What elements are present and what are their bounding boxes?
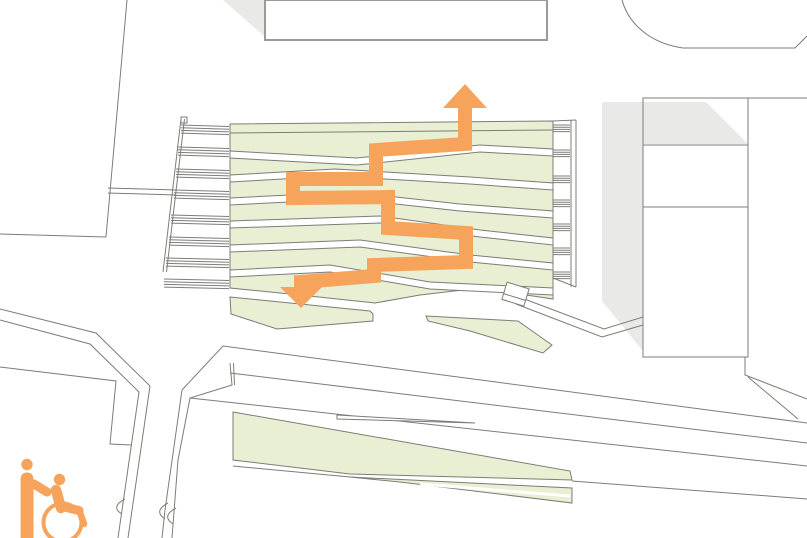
building-top-right-outline <box>622 0 807 48</box>
stairs-left-steps-1-line <box>181 133 229 135</box>
roadside-line <box>572 481 807 499</box>
plaza-boundary-bottom <box>0 234 106 237</box>
stairs-left-steps-6-line <box>169 237 229 239</box>
walkway-line-1 <box>108 188 176 190</box>
route-arrow-up-icon <box>443 84 487 108</box>
attendant-arm <box>34 484 47 492</box>
stairs-left-steps-5-line <box>171 215 229 217</box>
stairs-left-steps-4-line <box>174 190 229 192</box>
plaza-left-boundary <box>0 367 131 445</box>
site-plan-page <box>0 0 807 538</box>
walkway-line-2 <box>108 193 176 195</box>
stairs-left-steps-1-line <box>181 130 229 132</box>
stairs-left-steps-5-line <box>171 220 229 222</box>
lawn-sliver <box>350 477 572 503</box>
stairs-left-steps-8-line <box>164 279 229 281</box>
stairs-left-steps-1-line <box>181 125 229 127</box>
stairs-left-steps-4-line <box>174 198 229 200</box>
stairs-left-steps-7-line <box>166 266 229 268</box>
stairs-left-steps-6-line <box>169 240 229 242</box>
stairs-left-steps-7-line <box>166 263 229 265</box>
stairs-left-steps-7-line <box>166 258 229 260</box>
stairs-left-steps-6-line <box>169 242 229 244</box>
stairs-left-steps-5-line <box>171 223 229 225</box>
lawn-wedge-main <box>233 412 572 480</box>
stairs-right-bottom <box>553 278 576 287</box>
stairs-right-cap <box>553 120 576 121</box>
stairs-left-steps-3-line <box>176 169 229 171</box>
shadow-top-left <box>223 0 265 37</box>
stairs-left-steps-1-line <box>181 128 229 130</box>
stairs-left-steps-8-line <box>164 284 229 286</box>
stairs-left-steps-6-line <box>169 245 229 247</box>
site-plan-svg <box>0 0 807 538</box>
road-right-corner-1 <box>745 357 807 399</box>
attendant-head <box>21 459 32 470</box>
stairs-left-steps-3-line <box>176 174 229 176</box>
stairs-left-steps-4-line <box>174 195 229 197</box>
stairs-left-steps-7-line <box>166 261 229 263</box>
stairs-left-steps-8-line <box>164 282 229 284</box>
stairs-left-steps-3-line <box>176 177 229 179</box>
stairs-left-steps-2-line <box>178 152 229 154</box>
wheelchair-user-head <box>54 474 65 485</box>
stairs-left-steps-2-line <box>178 150 229 152</box>
stairs-left-steps-2-line <box>178 155 229 157</box>
road-edge-inner <box>172 363 232 538</box>
stairs-left-steps-8-line <box>164 287 229 289</box>
building-top-center <box>265 0 547 40</box>
stairs-left-steps-2-line <box>178 147 229 149</box>
stairs-left-steps-3-line <box>176 172 229 174</box>
stairs-left-steps-5-line <box>171 218 229 220</box>
lawn-small-right <box>426 316 552 353</box>
plaza-boundary-diagonal <box>106 0 127 237</box>
road-bump-2 <box>168 508 176 524</box>
road-right-corner-2 <box>748 377 798 419</box>
stairs-left-steps-4-line <box>174 193 229 195</box>
